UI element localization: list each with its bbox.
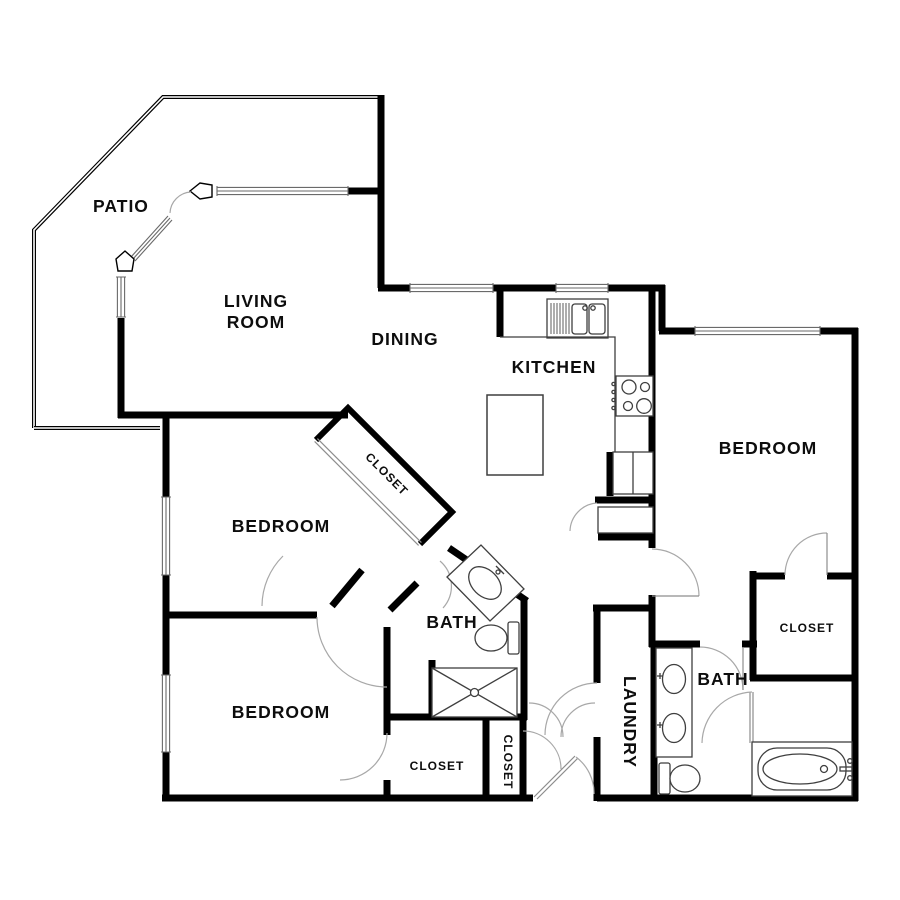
- tub-enclosure-door: [702, 692, 753, 743]
- room-label-kitchen: KITCHEN: [512, 357, 597, 377]
- window-living-north: [217, 186, 348, 196]
- cooktop: [612, 376, 653, 416]
- window-living-diagonal: [131, 216, 172, 261]
- laundry-door-arc: [545, 683, 597, 735]
- window-living-west: [116, 277, 126, 317]
- bedroom-bottom-door-arc: [317, 617, 387, 687]
- kitchen-niche: [598, 507, 653, 533]
- window-bedroom-right: [695, 326, 820, 336]
- window-bedroom-bottom: [161, 675, 171, 752]
- patio-door-jamb-1: [190, 183, 212, 199]
- room-label-laundry: LAUNDRY: [620, 676, 640, 768]
- room-label-bath-right: BATH: [697, 669, 748, 689]
- room-label-bath-middle: BATH: [426, 612, 477, 632]
- closet-right-door: [785, 533, 827, 575]
- toilet-right-bath: [659, 763, 700, 794]
- fixtures: [432, 299, 852, 796]
- patio-door-arc: [170, 192, 191, 213]
- closet-hall-door-arc: [523, 731, 561, 769]
- window-bedroom-middle: [161, 497, 171, 575]
- kitchen-hall-door-arc: [570, 503, 597, 531]
- closet-label-hall: CLOSET: [501, 735, 515, 790]
- bedroom-middle-door-arc: [262, 556, 283, 606]
- windows: [116, 186, 820, 752]
- window-dining-2: [556, 283, 608, 293]
- entry-door: [534, 756, 594, 799]
- closet-label-right: CLOSET: [780, 621, 835, 635]
- room-label-bedroom-right: BEDROOM: [719, 438, 817, 458]
- room-label-bedroom-bottom: BEDROOM: [232, 702, 330, 722]
- floor-plan: PATIO LIVING ROOM DINING KITCHEN BEDROOM…: [0, 0, 900, 900]
- room-label-bedroom-middle: BEDROOM: [232, 516, 330, 536]
- toilet-middle-bath: [475, 622, 519, 654]
- room-label-dining: DINING: [371, 329, 438, 349]
- patio-door-jamb-2: [116, 251, 134, 271]
- floor-plan-page: PATIO LIVING ROOM DINING KITCHEN BEDROOM…: [0, 0, 900, 900]
- patio-boundary: [34, 97, 378, 428]
- closet-bottom-door-arc: [340, 733, 387, 780]
- kitchen-sink: [547, 299, 608, 338]
- room-label-living-1: LIVING: [224, 291, 288, 311]
- bathtub: [752, 742, 852, 796]
- window-dining-1: [410, 283, 493, 293]
- closet-label-bottom: CLOSET: [410, 759, 465, 773]
- corridor-double-door-arcs: [529, 703, 595, 737]
- bedroom-right-door: [652, 549, 699, 596]
- room-label-patio: PATIO: [93, 196, 149, 216]
- bath-middle-door-arc: [440, 561, 451, 608]
- kitchen-island: [487, 395, 543, 475]
- refrigerator: [613, 452, 653, 494]
- shower-stall: [432, 668, 517, 717]
- room-label-living-2: ROOM: [227, 312, 285, 332]
- vanity-right-bath: [656, 648, 692, 757]
